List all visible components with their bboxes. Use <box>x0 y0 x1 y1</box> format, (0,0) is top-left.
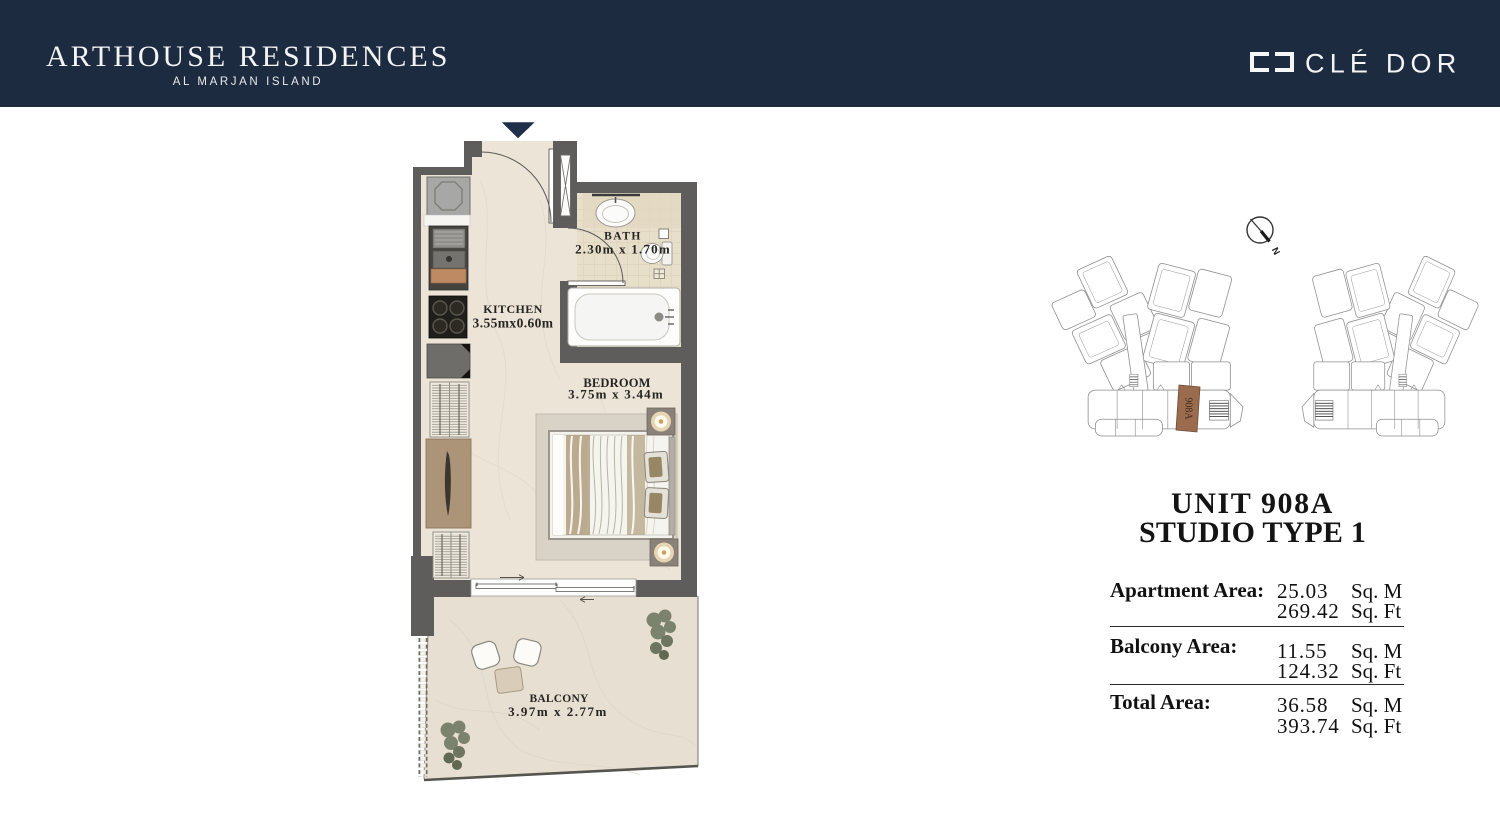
svg-text:CLÉ DOR: CLÉ DOR <box>1305 49 1461 79</box>
svg-text:3.97m x 2.77m: 3.97m x 2.77m <box>508 704 608 719</box>
svg-text:2.30m x 1.70m: 2.30m x 1.70m <box>575 242 671 257</box>
svg-text:908A: 908A <box>1183 397 1194 420</box>
svg-text:3.55mx0.60m: 3.55mx0.60m <box>473 316 554 331</box>
svg-text:3.75m x 3.44m: 3.75m x 3.44m <box>568 387 664 402</box>
svg-text:KITCHEN: KITCHEN <box>483 302 542 316</box>
svg-text:N: N <box>1269 246 1282 257</box>
